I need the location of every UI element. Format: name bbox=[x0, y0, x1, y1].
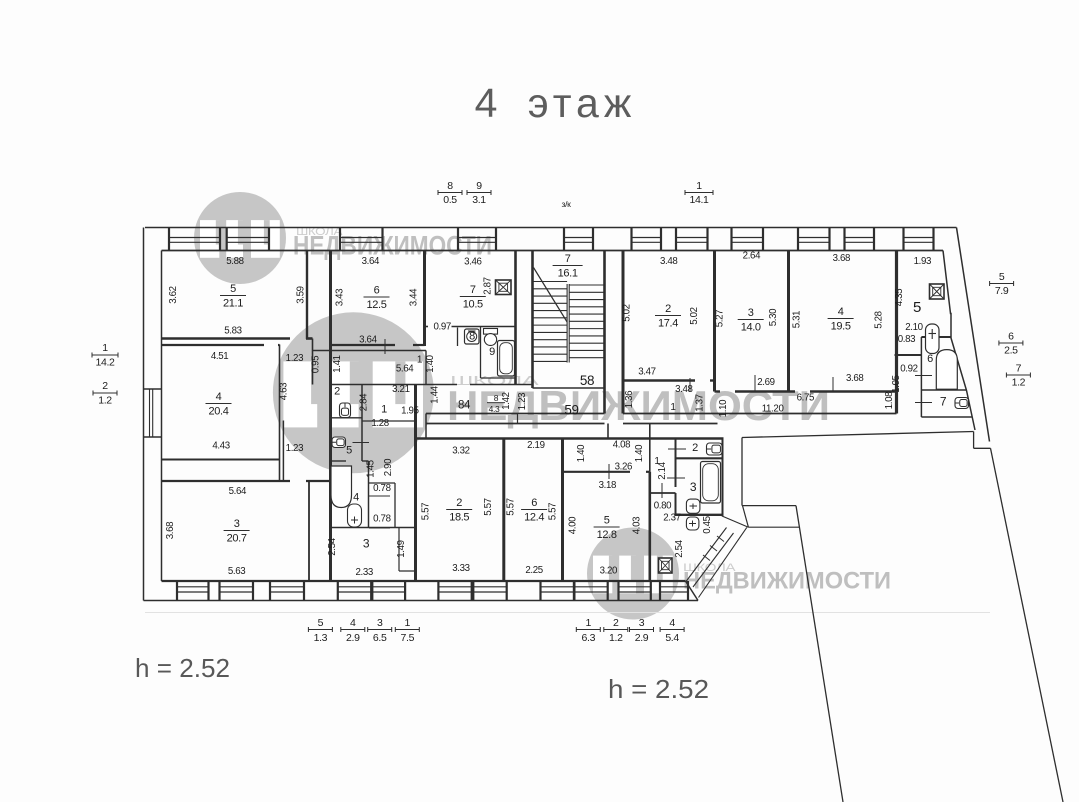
svg-text:3.64: 3.64 bbox=[362, 256, 380, 267]
svg-text:3: 3 bbox=[748, 307, 754, 319]
svg-text:2.10: 2.10 bbox=[905, 322, 923, 333]
svg-text:16.1: 16.1 bbox=[558, 268, 578, 280]
svg-text:1.44: 1.44 bbox=[430, 385, 441, 403]
svg-text:18.5: 18.5 bbox=[449, 512, 469, 524]
svg-text:2: 2 bbox=[102, 380, 108, 392]
svg-text:12.8: 12.8 bbox=[597, 529, 617, 541]
svg-text:5: 5 bbox=[999, 271, 1005, 283]
svg-text:4: 4 bbox=[353, 492, 359, 504]
svg-text:2.69: 2.69 bbox=[757, 377, 774, 388]
svg-text:3.20: 3.20 bbox=[600, 566, 618, 577]
svg-text:2: 2 bbox=[456, 497, 462, 509]
svg-text:8: 8 bbox=[494, 393, 499, 403]
svg-text:2.84: 2.84 bbox=[359, 393, 370, 411]
svg-text:1.3: 1.3 bbox=[314, 632, 328, 644]
svg-text:3.47: 3.47 bbox=[638, 367, 655, 378]
svg-text:0.92: 0.92 bbox=[900, 364, 917, 375]
svg-text:5.63: 5.63 bbox=[228, 566, 245, 577]
svg-text:21.1: 21.1 bbox=[223, 298, 243, 310]
svg-text:5.57: 5.57 bbox=[506, 498, 517, 515]
svg-text:5: 5 bbox=[913, 299, 921, 316]
svg-text:14.2: 14.2 bbox=[95, 357, 115, 369]
svg-text:4: 4 bbox=[838, 306, 844, 318]
svg-text:0.5: 0.5 bbox=[443, 194, 457, 206]
svg-text:3.44: 3.44 bbox=[409, 288, 420, 306]
svg-text:19.5: 19.5 bbox=[831, 321, 851, 333]
svg-text:1.37: 1.37 bbox=[695, 394, 706, 411]
svg-text:1.40: 1.40 bbox=[634, 444, 645, 462]
svg-text:1: 1 bbox=[670, 402, 676, 413]
svg-text:1.23: 1.23 bbox=[517, 393, 528, 410]
svg-text:3.46: 3.46 bbox=[464, 257, 481, 268]
svg-text:6.3: 6.3 bbox=[582, 632, 596, 644]
svg-text:3: 3 bbox=[234, 518, 240, 530]
svg-text:1.2: 1.2 bbox=[98, 395, 112, 407]
svg-text:2.5: 2.5 bbox=[1004, 345, 1018, 357]
svg-text:12.4: 12.4 bbox=[524, 512, 544, 524]
svg-text:5.57: 5.57 bbox=[548, 503, 559, 520]
svg-text:1: 1 bbox=[696, 180, 702, 192]
svg-text:4.08: 4.08 bbox=[613, 440, 630, 451]
svg-text:3.18: 3.18 bbox=[599, 480, 616, 491]
svg-text:1: 1 bbox=[417, 355, 423, 366]
svg-text:1.40: 1.40 bbox=[425, 354, 436, 372]
svg-text:84: 84 bbox=[458, 400, 471, 412]
svg-text:1.10: 1.10 bbox=[718, 399, 729, 417]
svg-text:h = 2.52: h = 2.52 bbox=[135, 653, 230, 683]
svg-text:3: 3 bbox=[639, 617, 645, 629]
svg-text:2.9: 2.9 bbox=[635, 632, 649, 644]
svg-text:5.30: 5.30 bbox=[768, 308, 779, 326]
svg-text:5.27: 5.27 bbox=[715, 310, 726, 327]
svg-text:3.64: 3.64 bbox=[359, 335, 377, 346]
svg-text:4.63: 4.63 bbox=[279, 383, 290, 400]
svg-text:3.33: 3.33 bbox=[452, 563, 469, 574]
svg-text:5.64: 5.64 bbox=[396, 364, 414, 375]
svg-text:1: 1 bbox=[405, 617, 411, 629]
svg-text:7: 7 bbox=[565, 253, 571, 265]
svg-text:0.78: 0.78 bbox=[373, 483, 390, 494]
svg-text:4.43: 4.43 bbox=[212, 441, 229, 452]
svg-text:2.14: 2.14 bbox=[657, 461, 668, 479]
svg-text:5.4: 5.4 bbox=[665, 632, 679, 644]
svg-text:1.45: 1.45 bbox=[366, 460, 377, 477]
svg-text:5.83: 5.83 bbox=[224, 326, 241, 337]
svg-text:3.68: 3.68 bbox=[165, 522, 176, 539]
svg-text:1: 1 bbox=[586, 617, 592, 629]
svg-text:3.68: 3.68 bbox=[846, 373, 863, 384]
svg-text:3.43: 3.43 bbox=[335, 289, 346, 306]
svg-text:этаж: этаж bbox=[528, 80, 637, 126]
svg-text:4: 4 bbox=[350, 617, 356, 629]
svg-text:7: 7 bbox=[1016, 363, 1022, 375]
svg-text:1.2: 1.2 bbox=[609, 632, 623, 644]
svg-text:1: 1 bbox=[381, 404, 387, 416]
svg-text:3.48: 3.48 bbox=[660, 256, 677, 267]
svg-text:6.75: 6.75 bbox=[797, 393, 814, 404]
svg-text:0.83: 0.83 bbox=[898, 334, 915, 345]
svg-text:6: 6 bbox=[927, 353, 933, 365]
svg-text:3: 3 bbox=[690, 480, 697, 494]
svg-text:2.54: 2.54 bbox=[327, 537, 338, 555]
svg-text:2: 2 bbox=[665, 303, 671, 315]
svg-text:8: 8 bbox=[469, 331, 475, 343]
svg-text:5.02: 5.02 bbox=[689, 307, 700, 324]
svg-text:1.23: 1.23 bbox=[286, 353, 303, 364]
svg-text:7.9: 7.9 bbox=[995, 285, 1009, 297]
svg-text:20.4: 20.4 bbox=[208, 406, 228, 418]
svg-text:1.08: 1.08 bbox=[884, 392, 895, 409]
svg-text:2.33: 2.33 bbox=[355, 567, 372, 578]
svg-text:2.54: 2.54 bbox=[674, 539, 685, 557]
svg-text:5: 5 bbox=[318, 617, 324, 629]
svg-text:2.9: 2.9 bbox=[346, 632, 360, 644]
svg-text:8: 8 bbox=[447, 180, 453, 192]
svg-text:2.90: 2.90 bbox=[383, 458, 394, 476]
svg-text:0.45: 0.45 bbox=[702, 516, 713, 533]
svg-text:5.28: 5.28 bbox=[874, 311, 885, 328]
svg-text:2: 2 bbox=[692, 442, 698, 454]
svg-text:2: 2 bbox=[613, 617, 619, 629]
svg-text:3.62: 3.62 bbox=[168, 286, 179, 303]
svg-text:4.00: 4.00 bbox=[568, 516, 579, 534]
svg-text:10.5: 10.5 bbox=[463, 299, 483, 311]
svg-text:7.5: 7.5 bbox=[401, 632, 415, 644]
svg-text:6.5: 6.5 bbox=[373, 632, 387, 644]
svg-text:5: 5 bbox=[346, 445, 352, 457]
svg-text:3: 3 bbox=[363, 537, 370, 551]
svg-text:6: 6 bbox=[374, 285, 380, 297]
svg-text:3.21: 3.21 bbox=[392, 384, 409, 395]
svg-text:1.05: 1.05 bbox=[891, 375, 902, 392]
svg-text:14.1: 14.1 bbox=[689, 194, 709, 206]
svg-text:1.28: 1.28 bbox=[371, 418, 388, 429]
svg-text:5.57: 5.57 bbox=[483, 498, 494, 515]
svg-text:4: 4 bbox=[475, 80, 498, 126]
svg-text:з/к: з/к bbox=[562, 199, 572, 209]
svg-text:2.37: 2.37 bbox=[663, 513, 680, 524]
svg-text:1.95: 1.95 bbox=[401, 406, 418, 417]
svg-text:12.5: 12.5 bbox=[366, 299, 386, 311]
svg-text:9: 9 bbox=[476, 180, 482, 192]
svg-text:58: 58 bbox=[580, 373, 594, 388]
svg-text:3.48: 3.48 bbox=[675, 384, 692, 395]
svg-text:6: 6 bbox=[531, 497, 537, 509]
svg-text:0.97: 0.97 bbox=[433, 322, 450, 333]
svg-text:3.32: 3.32 bbox=[452, 446, 469, 457]
svg-text:4.3: 4.3 bbox=[489, 404, 500, 414]
svg-text:3.68: 3.68 bbox=[833, 253, 850, 264]
svg-text:5: 5 bbox=[604, 515, 610, 527]
svg-text:3.59: 3.59 bbox=[296, 286, 307, 303]
svg-text:2.64: 2.64 bbox=[743, 251, 761, 262]
svg-text:20.7: 20.7 bbox=[227, 533, 247, 545]
svg-text:1.42: 1.42 bbox=[501, 392, 512, 409]
svg-text:17.4: 17.4 bbox=[658, 318, 678, 330]
svg-text:1.23: 1.23 bbox=[286, 443, 303, 454]
svg-text:14.0: 14.0 bbox=[741, 322, 761, 334]
svg-text:5.31: 5.31 bbox=[792, 311, 803, 328]
svg-text:0.80: 0.80 bbox=[654, 501, 672, 512]
svg-text:3.26: 3.26 bbox=[615, 462, 632, 473]
svg-text:9: 9 bbox=[489, 346, 495, 358]
svg-text:0.95: 0.95 bbox=[311, 356, 322, 373]
svg-text:6: 6 bbox=[1008, 331, 1014, 343]
svg-text:2.87: 2.87 bbox=[483, 277, 494, 294]
svg-text:1.49: 1.49 bbox=[396, 540, 407, 557]
svg-text:h = 2.52: h = 2.52 bbox=[608, 674, 709, 704]
svg-text:2.25: 2.25 bbox=[525, 565, 542, 576]
svg-text:3.1: 3.1 bbox=[472, 194, 486, 206]
svg-text:4.03: 4.03 bbox=[632, 517, 643, 534]
svg-text:5: 5 bbox=[230, 283, 236, 295]
svg-text:5.57: 5.57 bbox=[421, 503, 432, 520]
svg-text:2: 2 bbox=[334, 386, 340, 398]
svg-text:7: 7 bbox=[940, 395, 947, 409]
svg-text:1: 1 bbox=[102, 342, 108, 354]
svg-text:1.41: 1.41 bbox=[332, 355, 343, 372]
svg-text:4.51: 4.51 bbox=[211, 351, 228, 362]
svg-text:0.78: 0.78 bbox=[373, 514, 390, 525]
svg-text:59: 59 bbox=[564, 403, 578, 418]
svg-text:3: 3 bbox=[377, 617, 383, 629]
svg-text:4: 4 bbox=[216, 391, 222, 403]
svg-text:1.36: 1.36 bbox=[624, 391, 635, 408]
svg-text:4.35: 4.35 bbox=[894, 289, 905, 306]
svg-text:11.20: 11.20 bbox=[762, 404, 785, 415]
svg-text:НЕДВИЖИМОСТИ: НЕДВИЖИМОСТИ bbox=[683, 568, 891, 595]
svg-text:7: 7 bbox=[470, 284, 476, 296]
svg-text:5.88: 5.88 bbox=[226, 256, 243, 267]
svg-text:5.02: 5.02 bbox=[622, 304, 633, 321]
svg-text:1.93: 1.93 bbox=[914, 256, 931, 267]
svg-text:1.2: 1.2 bbox=[1012, 377, 1026, 389]
svg-text:5.64: 5.64 bbox=[229, 486, 247, 497]
svg-text:4: 4 bbox=[669, 617, 675, 629]
svg-text:НЕДВИЖИМОСТИ: НЕДВИЖИМОСТИ bbox=[293, 231, 492, 261]
svg-text:1.40: 1.40 bbox=[576, 444, 587, 462]
svg-text:2.19: 2.19 bbox=[527, 440, 544, 451]
